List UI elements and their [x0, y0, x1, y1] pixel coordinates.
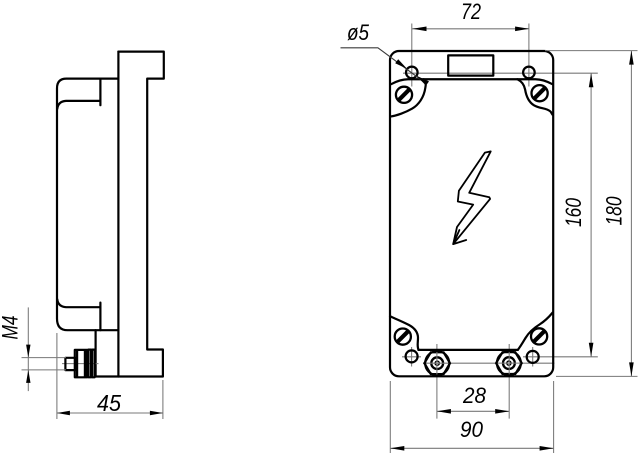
- svg-text:ø5: ø5: [347, 20, 370, 45]
- svg-text:45: 45: [97, 390, 121, 416]
- svg-text:72: 72: [461, 0, 481, 24]
- svg-text:160: 160: [561, 197, 586, 227]
- svg-text:28: 28: [462, 383, 487, 408]
- svg-text:180: 180: [602, 196, 627, 226]
- svg-text:M4: M4: [0, 316, 23, 340]
- svg-text:90: 90: [460, 417, 484, 442]
